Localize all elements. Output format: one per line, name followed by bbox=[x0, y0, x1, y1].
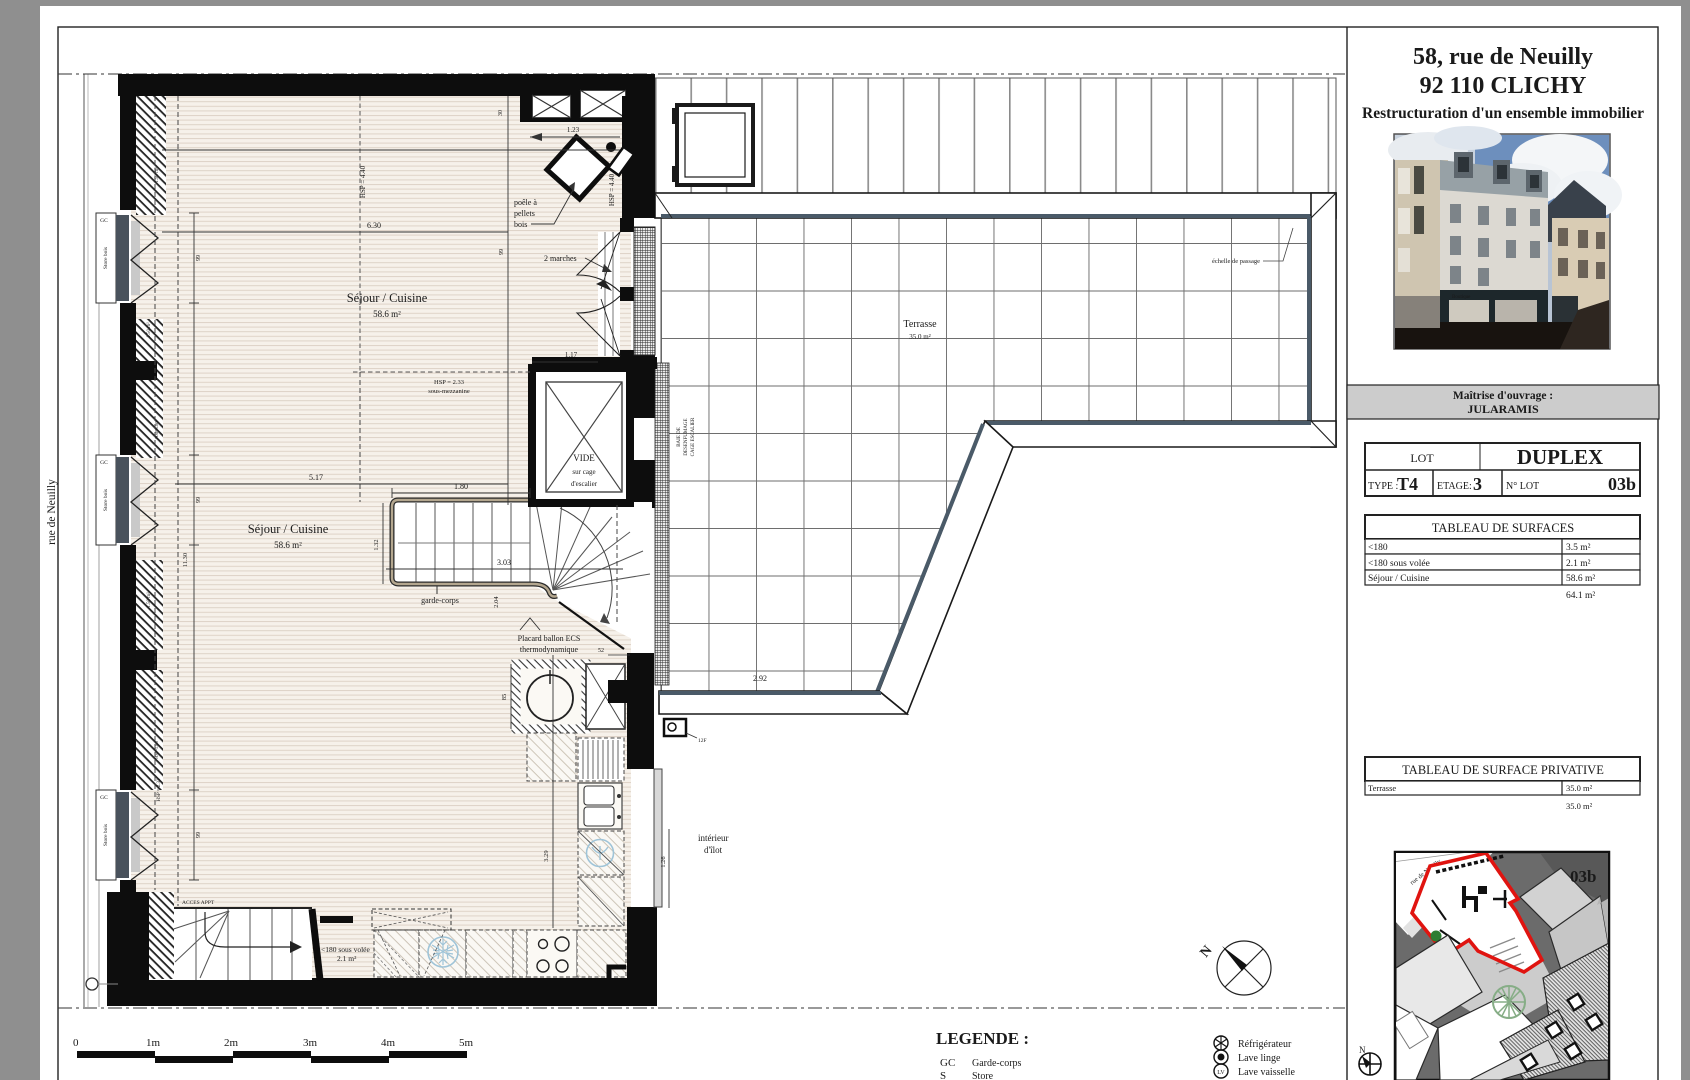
svg-text:VIDE: VIDE bbox=[573, 453, 595, 463]
svg-text:6.30: 6.30 bbox=[367, 221, 381, 230]
svg-text:0: 0 bbox=[73, 1037, 79, 1049]
svg-text:99: 99 bbox=[196, 255, 202, 261]
svg-text:TABLEAU DE SURFACES: TABLEAU DE SURFACES bbox=[1432, 521, 1575, 535]
svg-text:sous-mezzanine: sous-mezzanine bbox=[428, 388, 470, 395]
svg-text:03b: 03b bbox=[1570, 867, 1596, 886]
svg-text:N° LOT: N° LOT bbox=[1506, 481, 1539, 492]
svg-text:58, rue de Neuilly: 58, rue de Neuilly bbox=[1413, 44, 1593, 70]
svg-text:intérieur: intérieur bbox=[698, 833, 729, 843]
svg-text:35.0 m²: 35.0 m² bbox=[1566, 783, 1593, 793]
svg-text:HSP = 4.40: HSP = 4.40 bbox=[608, 173, 616, 206]
svg-text:Store: Store bbox=[972, 1071, 994, 1080]
svg-text:Réfrigérateur: Réfrigérateur bbox=[1238, 1039, 1292, 1050]
svg-text:3.29: 3.29 bbox=[543, 850, 550, 861]
svg-text:2 marches: 2 marches bbox=[544, 254, 577, 263]
svg-text:2.1 m²: 2.1 m² bbox=[1566, 559, 1591, 569]
svg-text:1.80: 1.80 bbox=[454, 482, 468, 491]
svg-text:58.6 m²: 58.6 m² bbox=[1566, 574, 1595, 584]
svg-text:HSP = 2.33: HSP = 2.33 bbox=[434, 379, 464, 386]
svg-text:Terrasse: Terrasse bbox=[1368, 783, 1396, 793]
svg-text:3: 3 bbox=[1473, 474, 1482, 494]
svg-text:LEGENDE :: LEGENDE : bbox=[936, 1029, 1029, 1048]
svg-text:garde-corps: garde-corps bbox=[421, 596, 459, 605]
svg-text:T4: T4 bbox=[1397, 474, 1418, 494]
svg-text:<180 sous volée: <180 sous volée bbox=[1368, 559, 1430, 569]
svg-text:GC: GC bbox=[940, 1057, 955, 1069]
svg-text:TYPE :: TYPE : bbox=[1368, 481, 1398, 492]
svg-text:JULARAMIS: JULARAMIS bbox=[1467, 402, 1539, 416]
svg-text:Lave vaisselle: Lave vaisselle bbox=[1238, 1067, 1295, 1078]
svg-text:3m: 3m bbox=[303, 1037, 318, 1049]
svg-text:rue de Neuilly: rue de Neuilly bbox=[46, 479, 58, 545]
svg-text:<180 sous volée: <180 sous volée bbox=[321, 945, 370, 954]
svg-text:DESENFUMAGE: DESENFUMAGE bbox=[684, 418, 689, 455]
svg-text:99: 99 bbox=[196, 497, 202, 503]
svg-text:92 110 CLICHY: 92 110 CLICHY bbox=[1420, 73, 1587, 99]
svg-text:échelle de passage: échelle de passage bbox=[1212, 258, 1260, 265]
svg-text:85: 85 bbox=[501, 694, 508, 701]
svg-text:1.50 m²: 1.50 m² bbox=[146, 592, 152, 608]
svg-text:3.5 m²: 3.5 m² bbox=[1566, 543, 1591, 553]
svg-text:3.03: 3.03 bbox=[497, 558, 511, 567]
svg-text:GC: GC bbox=[100, 460, 108, 466]
svg-text:5.17: 5.17 bbox=[309, 473, 323, 482]
svg-text:pellets: pellets bbox=[514, 209, 535, 218]
svg-text:35.0 m²: 35.0 m² bbox=[909, 333, 931, 341]
svg-text:64.1 m²: 64.1 m² bbox=[1566, 591, 1595, 601]
svg-text:1.26: 1.26 bbox=[660, 856, 667, 868]
svg-text:Séjour / Cuisine: Séjour / Cuisine bbox=[248, 522, 329, 536]
svg-text:11.30: 11.30 bbox=[182, 553, 189, 567]
svg-text:HSP = 2.33: HSP = 2.33 bbox=[157, 778, 162, 802]
svg-text:2.04: 2.04 bbox=[493, 596, 500, 608]
svg-text:52: 52 bbox=[598, 648, 604, 654]
svg-text:Garde-corps: Garde-corps bbox=[972, 1058, 1022, 1069]
svg-text:Store bois: Store bois bbox=[103, 824, 109, 846]
svg-text:BAIE DE: BAIE DE bbox=[677, 427, 682, 447]
svg-text:LOT: LOT bbox=[1410, 451, 1434, 465]
svg-text:Lave linge: Lave linge bbox=[1238, 1053, 1281, 1064]
svg-text:12F: 12F bbox=[698, 738, 707, 744]
svg-text:1.32: 1.32 bbox=[373, 539, 380, 550]
svg-text:5m: 5m bbox=[459, 1037, 474, 1049]
svg-text:ETAGE:: ETAGE: bbox=[1437, 481, 1472, 492]
svg-text:Maîtrise d'ouvrage :: Maîtrise d'ouvrage : bbox=[1453, 390, 1553, 402]
svg-text:d'escalier: d'escalier bbox=[571, 480, 598, 488]
svg-text:HSP³1.80: HSP³1.80 bbox=[154, 421, 159, 439]
svg-text:Store bois: Store bois bbox=[103, 489, 109, 511]
svg-text:1m: 1m bbox=[146, 1037, 161, 1049]
svg-text:sur cage: sur cage bbox=[572, 468, 595, 476]
svg-text:58.6 m²: 58.6 m² bbox=[373, 309, 401, 319]
svg-text:99: 99 bbox=[196, 832, 202, 838]
svg-text:Restructuration d'un ensemble: Restructuration d'un ensemble immobilier bbox=[1362, 105, 1644, 122]
svg-text:bois: bois bbox=[514, 220, 527, 229]
svg-text:<180: <180 bbox=[1368, 543, 1388, 553]
svg-text:GC: GC bbox=[100, 218, 108, 224]
svg-text:1.50 m²: 1.50 m² bbox=[146, 322, 152, 338]
svg-text:DUPLEX: DUPLEX bbox=[1517, 445, 1603, 469]
svg-text:03b: 03b bbox=[1608, 474, 1636, 494]
svg-text:4m: 4m bbox=[381, 1037, 396, 1049]
svg-text:Placard ballon ECS: Placard ballon ECS bbox=[518, 634, 581, 643]
svg-text:1.17: 1.17 bbox=[565, 351, 578, 359]
svg-text:Séjour / Cuisine: Séjour / Cuisine bbox=[1368, 574, 1429, 584]
svg-text:Terrasse: Terrasse bbox=[903, 319, 937, 330]
svg-text:Boutique: Boutique bbox=[1452, 295, 1471, 300]
svg-text:2.1 m²: 2.1 m² bbox=[337, 954, 357, 963]
svg-text:HSP³1.80: HSP³1.80 bbox=[154, 741, 159, 759]
svg-text:1.50 m²: 1.50 m² bbox=[154, 167, 160, 183]
svg-text:S: S bbox=[940, 1070, 946, 1080]
svg-text:99: 99 bbox=[499, 249, 505, 255]
svg-text:d'îlot: d'îlot bbox=[704, 845, 723, 855]
svg-text:58.6 m²: 58.6 m² bbox=[274, 540, 302, 550]
svg-text:TABLEAU DE SURFACE PRIVATIVE: TABLEAU DE SURFACE PRIVATIVE bbox=[1402, 763, 1604, 777]
svg-text:30: 30 bbox=[498, 110, 504, 116]
svg-text:poêle à: poêle à bbox=[514, 198, 537, 207]
svg-text:2.92: 2.92 bbox=[753, 674, 767, 683]
svg-text:2m: 2m bbox=[224, 1037, 239, 1049]
svg-text:Séjour / Cuisine: Séjour / Cuisine bbox=[347, 291, 428, 305]
svg-text:ACCES APPT: ACCES APPT bbox=[182, 900, 215, 906]
svg-text:1.23: 1.23 bbox=[567, 126, 580, 134]
svg-text:HSP = 4.40: HSP = 4.40 bbox=[359, 165, 367, 198]
svg-text:35.0 m²: 35.0 m² bbox=[1566, 801, 1593, 811]
svg-text:LV: LV bbox=[1217, 1070, 1225, 1076]
svg-text:thermodynamique: thermodynamique bbox=[520, 645, 579, 654]
svg-text:Store bois: Store bois bbox=[103, 247, 109, 269]
svg-text:CAGE ESCALIER: CAGE ESCALIER bbox=[691, 417, 696, 456]
svg-text:GC: GC bbox=[100, 795, 108, 801]
